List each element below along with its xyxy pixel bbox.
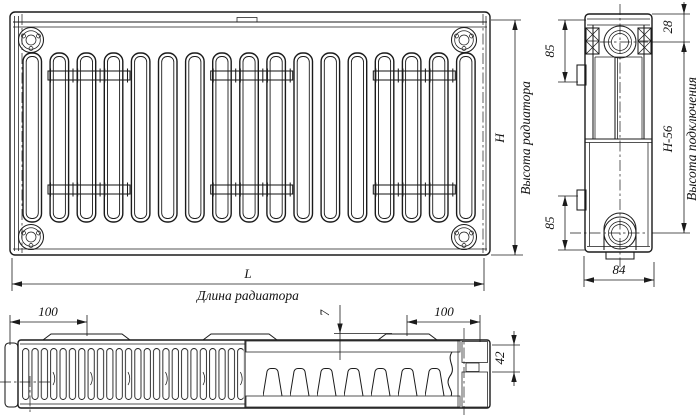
bracket-bump-1 [43, 334, 130, 340]
plug-top-right [452, 28, 477, 53]
dim-28-label: 28 [660, 20, 675, 34]
dim-connection-height: H-56 Высота подключения [660, 42, 699, 233]
dim-85-upper: 85 [542, 20, 586, 82]
dim-100-left: 100 [10, 304, 87, 345]
section-convector-fins [263, 368, 445, 396]
dim-84-label: 84 [613, 262, 627, 277]
height-caption-label: Высота радиатора [518, 81, 533, 195]
radiator-drawing-canvas: H Высота радиатора L Длина радиатора [0, 0, 700, 415]
length-caption-label: Длина радиатора [195, 288, 299, 303]
length-symbol-label: L [243, 266, 251, 281]
bracket-bump-3 [378, 334, 437, 340]
dim-84: 84 [584, 256, 654, 287]
height-symbol-label: H [492, 133, 507, 144]
connection-height-caption-label: Высота подключения [684, 77, 699, 201]
dim-100-left-label: 100 [38, 304, 58, 319]
dim-42-label: 42 [492, 351, 507, 365]
top-view [0, 328, 490, 415]
dim-100-right-label: 100 [434, 304, 454, 319]
dim-42: 42 [492, 331, 520, 386]
panel-fins [23, 53, 475, 222]
drawing-svg: H Высота радиатора L Длина радиатора [0, 0, 700, 415]
dim-length: L Длина радиатора [12, 258, 484, 303]
front-view [10, 12, 490, 255]
dim-7-label: 7 [318, 309, 332, 316]
top-grille [22, 348, 244, 400]
top-mounting-tab [237, 18, 257, 23]
dim-85-lower: 85 [542, 196, 586, 250]
bracket-bump-2 [203, 334, 277, 340]
dim-height: H Высота радиатора [491, 20, 533, 255]
connection-height-symbol-label: H-56 [660, 125, 675, 153]
dim-100-right: 100 [407, 304, 480, 342]
dim-85-upper-label: 85 [542, 44, 557, 58]
section-end-cap [458, 340, 488, 408]
plug-bottom-right [452, 225, 477, 250]
dim-85-lower-label: 85 [542, 216, 557, 230]
